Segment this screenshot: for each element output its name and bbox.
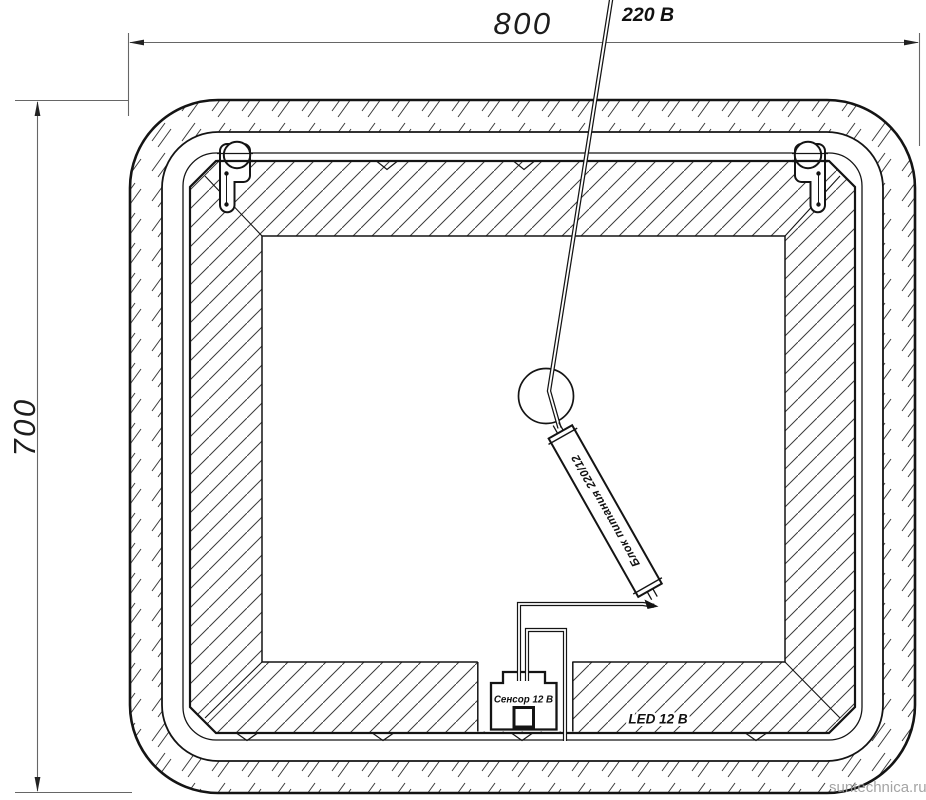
screw-dot <box>816 202 820 206</box>
sensor-label: Сенсор 12 В <box>494 695 553 706</box>
screw-dot <box>816 171 820 175</box>
height-dimension-label: 700 <box>7 397 42 456</box>
arrowhead-bottom <box>35 777 41 792</box>
arrowhead-top <box>35 101 41 116</box>
screw-dot <box>224 171 228 175</box>
screw-head-circle <box>795 142 821 168</box>
arrowhead-left <box>129 40 144 46</box>
screw-dot <box>224 202 228 206</box>
panel-opening <box>262 236 785 662</box>
power-line-label: 220 В <box>621 4 674 26</box>
width-dimension-label: 800 <box>493 6 552 41</box>
inner-frame-panel <box>190 161 855 741</box>
led-strip-label: LED 12 В <box>628 712 688 727</box>
screw-head-circle <box>224 142 250 168</box>
technical-drawing-canvas: 800 700 <box>0 0 926 800</box>
arrowhead-right <box>904 40 919 46</box>
sensor-window <box>514 708 534 728</box>
cable-hole-circle <box>519 369 574 424</box>
mirror-technical-drawing: 800 700 <box>0 0 926 800</box>
watermark: suntechnica.ru <box>829 779 926 796</box>
